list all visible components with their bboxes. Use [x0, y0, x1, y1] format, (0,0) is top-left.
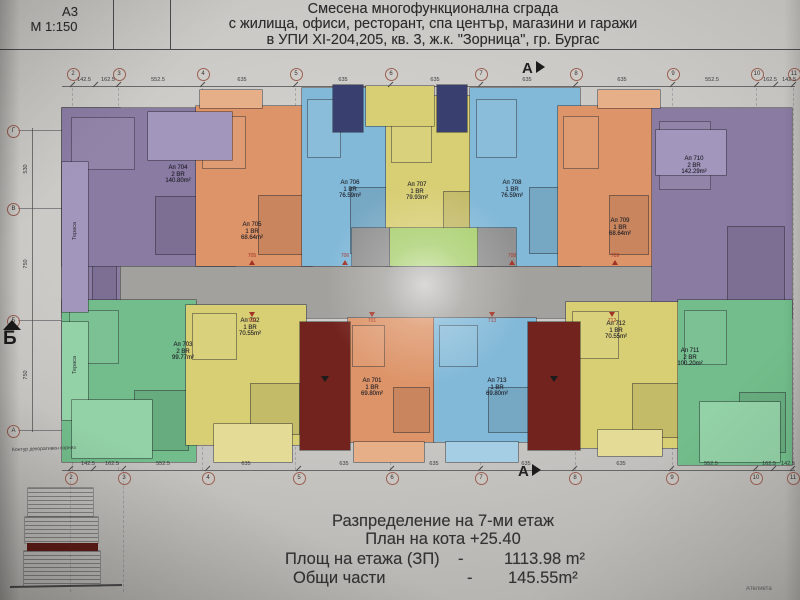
floor-area-label: Площ на етажа (ЗП): [285, 550, 440, 569]
entrance-arrow-icon: [249, 260, 255, 265]
dimension-top: 635: [617, 77, 626, 83]
dimension-bottom: 162.5: [105, 461, 119, 467]
common-area-value: 145.55m²: [508, 569, 578, 588]
balcony-705: [200, 90, 262, 108]
bottom-dimension-line: [62, 470, 795, 471]
balcony-712: [598, 430, 662, 456]
section-letter: Б: [3, 330, 21, 348]
entrance-number-705: 705: [248, 253, 256, 259]
axis-leader: [18, 130, 62, 131]
common-area-sep: -: [467, 569, 473, 588]
apartment-label-705: Ап 7051 BR68.64m²: [241, 222, 263, 242]
balcony-702: [214, 424, 292, 462]
dimension-bottom: 142.5: [81, 461, 95, 467]
entrance-arrow-icon: [369, 312, 375, 317]
entrance-arrow-icon: [609, 312, 615, 317]
balcony-713: [446, 442, 518, 462]
axis-column-top-6: 6: [385, 68, 398, 81]
dimension-top: 635: [338, 77, 347, 83]
axis-column-bottom-2: 2: [65, 472, 78, 485]
apartment-label-706: Ап 7061 BR76.59m²: [339, 180, 361, 200]
entrance-number-709: 709: [611, 253, 619, 259]
floor-title: Разпределение на 7-ми етаж: [86, 512, 800, 531]
dimension-left: 750: [23, 259, 29, 268]
dimension-top: 142.5: [77, 77, 91, 83]
entrance-arrow-icon: [249, 312, 255, 317]
axis-column-bottom-11: 11: [787, 472, 800, 485]
apartment-label-704: Ап 7042 BR140.80m²: [165, 165, 190, 185]
balcony-701: [354, 442, 424, 462]
dimension-left: 530: [23, 164, 29, 173]
stair-core-top-left: [333, 85, 363, 132]
dimension-top: 635: [522, 77, 531, 83]
axis-row-0: Г: [7, 125, 20, 138]
axis-column-bottom-3: 3: [118, 472, 131, 485]
axis-leader: [18, 208, 62, 209]
entrance-arrow-icon: [342, 260, 348, 265]
entrance-number-702: 702: [248, 318, 256, 324]
entrance-arrow-icon: [612, 260, 618, 265]
apartment-label-703: Ап 7032 BR99.77m²: [172, 342, 194, 362]
axis-leader: [18, 430, 62, 431]
dimension-bottom: 552.5: [704, 461, 718, 467]
floor-area-sep: -: [458, 550, 464, 569]
dimension-bottom: 635: [339, 461, 348, 467]
section-marker-a-top: А: [522, 60, 545, 77]
drawing-title: Смесена многофункционална сграда с жилищ…: [66, 2, 800, 48]
dimension-bottom: 635: [429, 461, 438, 467]
entrance-number-706: 706: [341, 253, 349, 259]
staircase-left: [300, 322, 350, 450]
sketch-block-3: [24, 551, 100, 586]
balcony-709: [598, 90, 660, 108]
grid-line: [793, 88, 794, 470]
apartment-712: [566, 302, 690, 448]
terrace-704-top: [148, 112, 232, 160]
terrace-label-left-bottom: Тераса: [72, 348, 78, 382]
corner-note: Ателиета: [746, 586, 772, 592]
titleblock-rule: [0, 49, 800, 50]
axis-column-bottom-6: 6: [386, 472, 399, 485]
entrance-number-701: 701: [368, 318, 376, 324]
axis-column-bottom-8: 8: [569, 472, 582, 485]
axis-column-bottom-9: 9: [666, 472, 679, 485]
entrance-arrow-icon: [489, 312, 495, 317]
stair-core-top-right: [437, 85, 467, 132]
title-line-3: в УПИ XI-204,205, кв. 3, ж.к. "Зорница",…: [66, 33, 800, 48]
apartment-709: [558, 106, 654, 266]
floor-area-value: 1113.98 m²: [504, 550, 585, 569]
floorplan-photo: A3 М 1:150 Смесена многофункционална сгр…: [0, 0, 800, 600]
staircase-right: [528, 322, 580, 450]
axis-column-bottom-4: 4: [202, 472, 215, 485]
axis-column-bottom-7: 7: [475, 472, 488, 485]
axis-leader: [18, 320, 62, 321]
apartment-label-711: Ап 7112 BR100.20m²: [677, 348, 702, 368]
entrance-arrow-icon: [509, 260, 515, 265]
entrance-number-712: 712: [608, 318, 616, 324]
level-title: План на кота +25.40: [86, 530, 800, 549]
apartment-label-713: Ап 7131 BR69.80m²: [486, 378, 508, 398]
axis-column-top-9: 9: [667, 68, 680, 81]
dimension-top: 552.5: [151, 77, 165, 83]
axis-row-3: А: [7, 425, 20, 438]
dimension-bottom: 552.5: [156, 461, 170, 467]
top-center-room: [366, 86, 434, 126]
sketch-block-1: [28, 488, 93, 516]
axis-column-top-10: 10: [751, 68, 764, 81]
apartment-label-701: Ап 7011 BR69.80m²: [361, 378, 383, 398]
title-line-2: с жилища, офиси, ресторант, спа център, …: [66, 17, 800, 32]
entrance-number-708: 708: [508, 253, 516, 259]
axis-column-bottom-10: 10: [750, 472, 763, 485]
dimension-top: 552.5: [705, 77, 719, 83]
apartment-label-709: Ап 7091 BR68.64m²: [609, 218, 631, 238]
terrace-711-bottom: [700, 402, 780, 462]
center-common-room: [390, 228, 478, 266]
axis-column-top-5: 5: [290, 68, 303, 81]
title-line-1: Смесена многофункционална сграда: [66, 2, 800, 17]
terrace-label-left-top: Тераса: [72, 214, 78, 248]
dimension-left: 750: [23, 370, 29, 379]
apartment-label-708: Ап 7081 BR76.59m²: [501, 180, 523, 200]
dimension-top: 635: [237, 77, 246, 83]
axis-row-1: В: [7, 203, 20, 216]
terrace-703-bottom: [72, 400, 152, 458]
entrance-number-713: 713: [488, 318, 496, 324]
left-dimension-line: [32, 128, 33, 432]
axis-column-top-4: 4: [197, 68, 210, 81]
axis-column-top-8: 8: [570, 68, 583, 81]
dimension-bottom: 635: [616, 461, 625, 467]
dimension-bottom: 635: [241, 461, 250, 467]
dimension-top: 635: [430, 77, 439, 83]
common-area-label: Общи части: [293, 569, 385, 588]
elevator-shaft-left: [352, 228, 390, 266]
section-marker-a-bottom: А: [518, 463, 541, 480]
apartment-label-707: Ап 7071 BR79.93m²: [406, 182, 428, 202]
axis-column-bottom-5: 5: [293, 472, 306, 485]
dimension-top: 162.5: [101, 77, 115, 83]
apartment-label-710: Ап 7102 BR142.29m²: [681, 156, 706, 176]
axis-column-top-7: 7: [475, 68, 488, 81]
section-arrow-icon: [532, 464, 541, 476]
apartment-label-712: Ап 7121 BR70.55m²: [605, 321, 627, 341]
dimension-top: 162.5: [763, 77, 777, 83]
section-marker-b: Б: [3, 320, 21, 348]
section-arrow-icon: [536, 61, 545, 73]
